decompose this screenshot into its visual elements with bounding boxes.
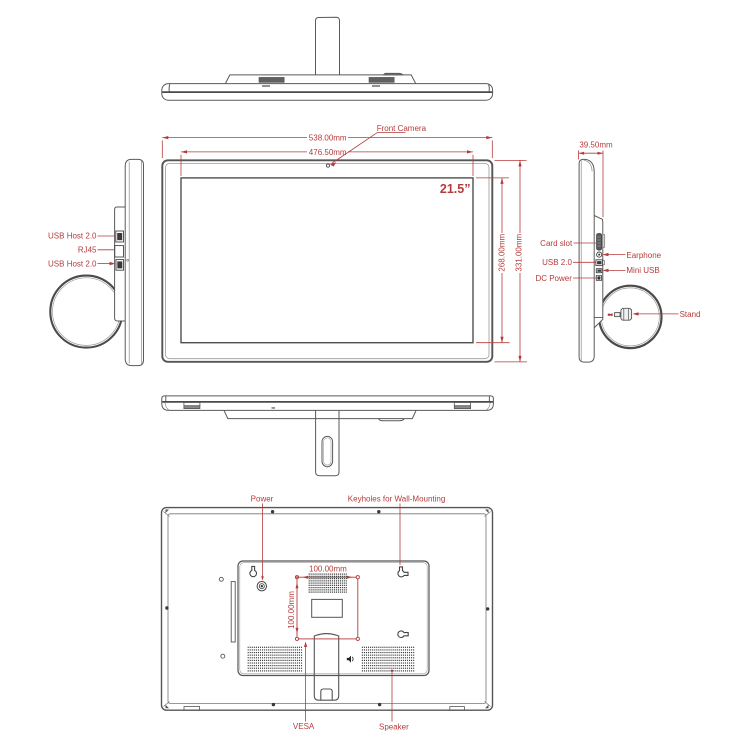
svg-text:USB Host 2.0: USB Host 2.0 <box>48 259 97 268</box>
svg-text:RJ45: RJ45 <box>78 245 97 254</box>
svg-text:Speaker: Speaker <box>379 723 409 732</box>
svg-text:Stand: Stand <box>680 310 701 319</box>
svg-text:100.00mm: 100.00mm <box>287 591 296 629</box>
svg-text:Card slot: Card slot <box>540 239 573 248</box>
svg-text:Front Camera: Front Camera <box>377 124 427 133</box>
svg-text:Keyholes for Wall-Mounting: Keyholes for Wall-Mounting <box>348 494 446 503</box>
svg-text:21.5”: 21.5” <box>440 182 471 196</box>
svg-text:USB 2.0: USB 2.0 <box>542 258 572 267</box>
svg-text:476.50mm: 476.50mm <box>309 148 347 157</box>
svg-text:331.00mm: 331.00mm <box>514 233 523 271</box>
svg-text:Power: Power <box>251 494 274 503</box>
svg-text:Mini USB: Mini USB <box>626 266 659 275</box>
svg-text:100.00mm: 100.00mm <box>309 565 347 574</box>
svg-text:538.00mm: 538.00mm <box>309 134 347 143</box>
svg-text:268.00mm: 268.00mm <box>498 233 507 271</box>
svg-text:39.50mm: 39.50mm <box>579 141 613 150</box>
svg-text:Earphone: Earphone <box>626 251 661 260</box>
svg-text:USB Host 2.0: USB Host 2.0 <box>48 231 97 240</box>
svg-text:VESA: VESA <box>293 722 315 731</box>
svg-text:DC Power: DC Power <box>535 274 572 283</box>
